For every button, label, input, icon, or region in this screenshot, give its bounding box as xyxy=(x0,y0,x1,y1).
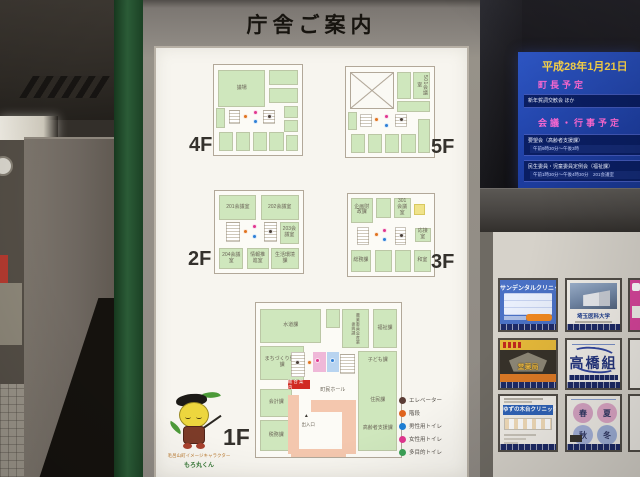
room xyxy=(284,106,297,118)
ad-header-band xyxy=(500,340,556,350)
room-label: 住民課 xyxy=(360,398,395,404)
ad-footer xyxy=(567,444,620,450)
legend-item: 多目的トイレ xyxy=(399,448,469,456)
mascot-foot xyxy=(196,443,205,449)
mens-toilet-icon xyxy=(252,234,257,239)
office-counter xyxy=(0,283,22,345)
mayor-event-text: 新年賀詞交歓会 ほか xyxy=(524,95,640,104)
legend-label: 男性用トイレ xyxy=(409,422,442,430)
legend-label: エレベーター xyxy=(409,396,442,404)
room: 総務課 xyxy=(351,250,372,272)
corridor xyxy=(342,400,357,454)
mayor-event-band: 新年賀詞交歓会 ほか xyxy=(524,94,640,108)
ad-dark-box xyxy=(570,435,582,442)
room xyxy=(418,119,429,153)
ad-yuzunokidai-clinic: ゆずの木台クリニック xyxy=(498,394,558,452)
womens-toilet-icon xyxy=(252,224,257,229)
stairs-icon xyxy=(243,114,248,119)
mascot-name: もろ丸くん xyxy=(163,460,235,469)
corridor xyxy=(291,449,346,457)
room xyxy=(286,135,297,151)
mens-toilet-icon xyxy=(384,123,389,128)
room xyxy=(326,309,341,327)
floor-guide-board: 庁舎ご案内 議場 4F 501会議室 xyxy=(143,0,480,477)
floor-plan-2f: 201会議室 202会議室 203会議室 204会議室 情報推進室 生活環境課 xyxy=(214,190,304,274)
ad-text-line xyxy=(504,401,532,403)
legend-item: 階段 xyxy=(399,409,469,417)
ad-text-box xyxy=(632,306,640,318)
stairs-icon xyxy=(340,354,355,374)
legend-item: エレベーター xyxy=(399,396,469,404)
room: 501会議室 xyxy=(413,72,430,99)
display-date: 平成28年1月21日 xyxy=(542,58,628,74)
womens-toilet-icon xyxy=(253,110,258,115)
events-title: 会議・行事予定 xyxy=(538,116,622,129)
ad-text-line xyxy=(572,344,614,345)
room xyxy=(216,108,226,128)
legend: エレベーター 階段 男性用トイレ 女性用トイレ 多目的トイレ xyxy=(399,396,469,461)
ad-white-cut xyxy=(628,338,640,390)
mascot-caption: 毛呂山町イメージキャラクター xyxy=(155,453,243,459)
room: 水道課 xyxy=(260,309,321,343)
stairs-icon xyxy=(226,222,239,242)
room: 生活環境課 xyxy=(271,248,298,269)
ad-orange-band xyxy=(500,374,556,382)
room xyxy=(284,120,297,132)
womens-toilet-icon xyxy=(384,114,389,119)
room xyxy=(376,198,391,218)
ad-title: 埼玉医科大学 xyxy=(567,312,620,320)
multipurpose-toilet-icon xyxy=(399,449,406,456)
room xyxy=(395,250,410,272)
green-pillar xyxy=(114,0,144,477)
room xyxy=(269,132,283,152)
room xyxy=(385,134,399,154)
glass-glare xyxy=(480,0,522,190)
floor-plan-4f: 議場 xyxy=(213,64,303,156)
mascot-eye xyxy=(196,415,202,419)
room: 応接室 xyxy=(415,228,430,241)
ad-schedule-table xyxy=(504,293,552,315)
sticky-note xyxy=(414,204,424,215)
ad-white-cut xyxy=(628,394,640,452)
event-title: 民生委員・児童委員定例会（福祉課） xyxy=(524,161,640,170)
stairs-icon xyxy=(307,360,312,365)
season-circle: 冬 xyxy=(597,425,617,445)
room: 福祉課 xyxy=(373,309,396,348)
mayor-schedule-title: 町長予定 xyxy=(538,78,586,91)
ceiling-vent xyxy=(19,76,111,98)
ad-footer xyxy=(500,382,556,388)
mascot-eye xyxy=(185,415,191,419)
event-time: 午前9時30分～午後3時 xyxy=(530,145,640,153)
room xyxy=(219,132,233,152)
ad-pharmacy: 堂薬局 xyxy=(498,338,558,390)
ad-red-text-marks xyxy=(503,342,523,348)
ad-footer xyxy=(500,444,556,450)
womens-toilet-icon xyxy=(399,436,406,443)
floor-plan-5f: 501会議室 xyxy=(345,66,435,158)
mascot-body xyxy=(183,426,205,444)
ad-schedule-table xyxy=(504,418,552,430)
room: 301会議室 xyxy=(394,198,411,218)
room xyxy=(375,250,392,272)
ad-button xyxy=(526,314,552,321)
room: 201会議室 xyxy=(219,195,256,220)
stairs-icon xyxy=(357,227,369,245)
ad-text-line xyxy=(504,398,543,400)
ad-text-line xyxy=(504,316,526,320)
mens-toilet-icon xyxy=(399,423,406,430)
womens-toilet-icon xyxy=(382,228,387,233)
building-shape xyxy=(583,290,610,306)
elevator-icon xyxy=(268,229,273,234)
legend-label: 階段 xyxy=(409,409,420,417)
floor-label-4f: 4F xyxy=(189,134,212,157)
room-label: 子ども課 xyxy=(360,358,395,364)
legend-label: 多目的トイレ xyxy=(409,448,442,456)
stairs-icon xyxy=(360,114,371,128)
room: 情報推進室 xyxy=(247,248,269,269)
ad-seasons: 春 夏 秋 冬 xyxy=(565,394,622,452)
ad-university: 埼玉医科大学 xyxy=(565,278,622,332)
void-area xyxy=(350,72,394,110)
stairs-icon xyxy=(374,232,379,237)
entrance-arrow-icon: ▲ xyxy=(304,414,309,419)
season-circle: 夏 xyxy=(597,403,617,423)
schedule-display-screen: 平成28年1月21日 町長予定 新年賀詞交歓会 ほか 会議・行事予定 要望会（高… xyxy=(518,52,640,188)
display-frame-bar xyxy=(480,188,640,232)
board-title: 庁舎ご案内 xyxy=(143,9,480,39)
event-band: 要望会（高齢者支援課） 午前9時30分～午後3時 xyxy=(524,134,640,156)
room xyxy=(269,88,298,103)
mascot-foot xyxy=(183,443,192,449)
building-photo xyxy=(570,283,617,309)
room: 202会議室 xyxy=(261,195,299,220)
entrance-label: 出入口 xyxy=(297,422,320,427)
legend-label: 女性用トイレ xyxy=(409,435,442,443)
ad-text-band xyxy=(569,375,618,380)
room: 議場 xyxy=(218,70,265,108)
ad-pink-cut xyxy=(628,278,640,332)
elevator-icon xyxy=(267,114,272,119)
floor-plan-1f: 水道課 まちづくり整備課 会計課 税務課 農業委員会産業振興課 福祉課 子ども課… xyxy=(255,302,402,458)
mens-toilet-icon xyxy=(253,119,258,124)
reception-box: 総合案内 xyxy=(288,380,310,389)
room xyxy=(397,72,411,99)
event-band: 民生委員・児童委員定例会（福祉課） 午前1時30分～午後4時30分 201会議室 xyxy=(524,160,640,182)
ad-footer xyxy=(567,382,620,388)
stairs-icon xyxy=(399,410,406,417)
room xyxy=(253,132,267,152)
room xyxy=(401,134,415,154)
room xyxy=(351,134,365,154)
ad-title: 堂薬局 xyxy=(500,362,556,372)
ad-text-line xyxy=(504,434,536,436)
room xyxy=(368,134,382,154)
room: 和室 xyxy=(414,250,430,272)
elevator-icon xyxy=(399,233,404,238)
ad-title: ゆずの木台クリニック xyxy=(503,405,553,415)
ad-dental-clinic: サンデンタルクリニック xyxy=(498,278,558,332)
room xyxy=(348,112,358,130)
room xyxy=(236,132,250,152)
mens-toilet-icon xyxy=(382,237,387,242)
legend-item: 男性用トイレ xyxy=(399,422,469,430)
hall-label: 町民ホール xyxy=(314,388,352,394)
room: 企画財政課 xyxy=(351,198,373,223)
stairs-icon xyxy=(374,117,379,122)
ad-footer xyxy=(567,324,620,330)
room xyxy=(397,101,430,112)
ad-footer xyxy=(500,324,556,330)
ad-text-line xyxy=(571,399,616,400)
room: 204会議室 xyxy=(219,248,243,269)
ad-logo xyxy=(632,283,640,291)
mascot-head xyxy=(179,402,209,428)
room: 203会議室 xyxy=(280,222,298,244)
season-circle: 春 xyxy=(573,403,593,423)
event-title: 要望会（高齢者支援課） xyxy=(524,135,640,144)
floor-label-3f: 3F xyxy=(431,251,454,274)
elevator-icon xyxy=(399,397,406,404)
room-label: 高齢者支援課 xyxy=(360,426,395,432)
ad-construction-company: 高橋組 xyxy=(565,338,622,390)
event-time: 午前1時30分～午後4時30分 201会議室 xyxy=(530,171,640,179)
ad-title: サンデンタルクリニック xyxy=(500,283,556,292)
legend-item: 女性用トイレ xyxy=(399,435,469,443)
floor-label-2f: 2F xyxy=(188,248,211,271)
floor-label-5f: 5F xyxy=(431,136,454,159)
stairs-icon xyxy=(229,110,240,124)
ad-text-line xyxy=(575,321,612,323)
ad-panel: サンデンタルクリニック 埼玉医科大学 堂薬局 xyxy=(480,232,640,477)
ad-text-line xyxy=(504,438,526,440)
mascot: 毛呂山町イメージキャラクター もろ丸くん xyxy=(163,394,235,472)
room: 農業委員会産業振興課 xyxy=(342,309,370,348)
stairs-icon xyxy=(243,229,248,234)
floor-plan-3f: 企画財政課 301会議室 応接室 総務課 和室 xyxy=(347,193,435,277)
scene: 庁舎ご案内 議場 4F 501会議室 xyxy=(0,0,640,477)
room xyxy=(269,70,298,85)
